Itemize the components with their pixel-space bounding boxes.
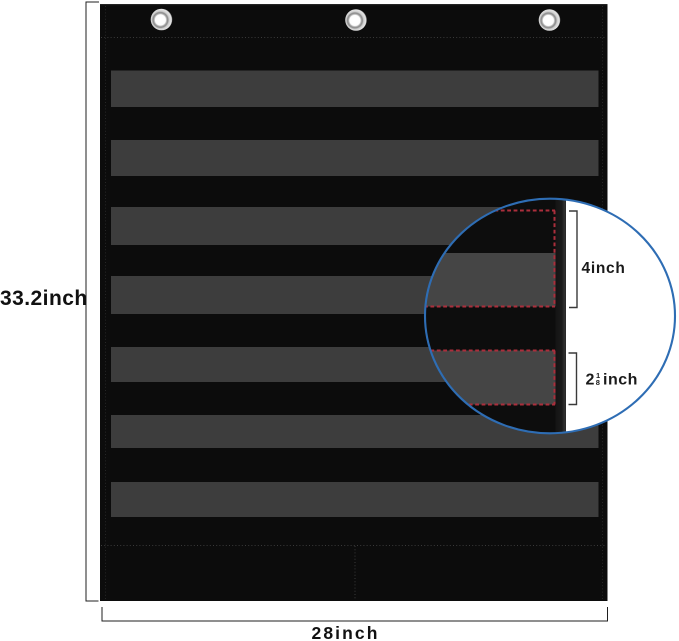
svg-text:28inch: 28inch [312,623,380,641]
svg-text:33.2inch: 33.2inch [0,287,88,310]
svg-text:inch: inch [603,372,638,389]
svg-text:2: 2 [586,372,595,389]
svg-text:4inch: 4inch [582,260,626,277]
svg-text:8: 8 [596,378,600,387]
